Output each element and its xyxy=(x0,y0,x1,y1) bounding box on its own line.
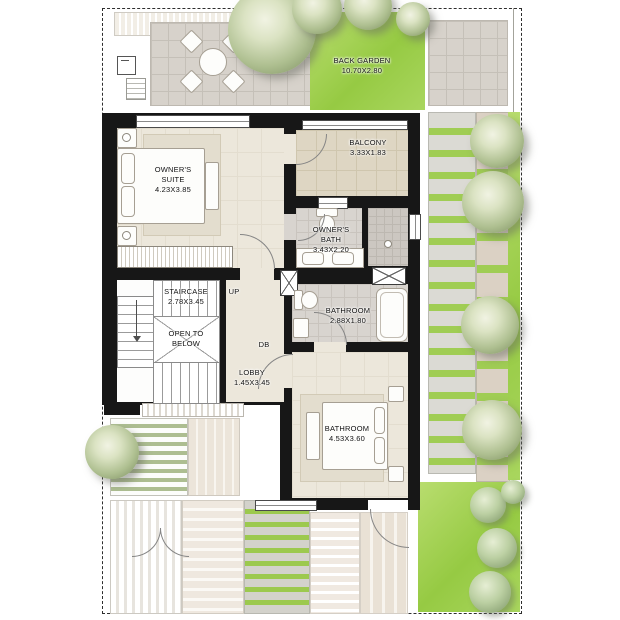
side-steps xyxy=(126,78,146,100)
nightstand xyxy=(388,386,404,402)
balcony-door-gap xyxy=(284,134,296,164)
entry-walk-strips xyxy=(310,512,360,614)
tree xyxy=(85,425,139,479)
shrub xyxy=(469,571,511,613)
suite-window xyxy=(136,115,250,128)
grasscrete-driveway xyxy=(244,500,310,614)
bed-bench xyxy=(205,162,219,210)
back-garden-label: BACK GARDEN 10.70X2.80 xyxy=(334,56,391,76)
suite-door-gap xyxy=(240,268,274,280)
lamp-icon xyxy=(122,231,131,240)
pillow xyxy=(374,407,385,434)
lobby-label: LOBBY 1.45X3.45 xyxy=(234,368,270,388)
carport-slats xyxy=(110,500,182,614)
utility-box-glyph xyxy=(121,60,129,61)
tree xyxy=(462,400,522,460)
shower-floor xyxy=(368,208,408,266)
bathroom-lower-label: BATHROOM 4.53X3.60 xyxy=(325,424,369,444)
balcony-railing xyxy=(302,120,408,130)
shrub xyxy=(501,480,525,504)
pillow xyxy=(374,437,385,464)
rear-paver-square xyxy=(428,20,508,106)
tree xyxy=(461,296,519,354)
owners-bath-label: OWNER'S BATH 3.43X2.20 xyxy=(306,225,356,255)
tree xyxy=(470,114,524,168)
stairs-lower-run xyxy=(153,362,220,404)
owners-bath-door-gap xyxy=(284,214,296,240)
nightstand xyxy=(388,466,404,482)
bathtub-inner xyxy=(380,292,404,338)
shaft-x xyxy=(372,267,406,285)
db-label: DB xyxy=(259,340,270,350)
front-window xyxy=(255,500,317,511)
owners-suite-label: OWNER'S SUITE 4.23X3.85 xyxy=(145,165,201,195)
pillow xyxy=(121,153,135,184)
tree xyxy=(462,171,524,233)
balcony-label: BALCONY 3.33X1.83 xyxy=(349,138,386,158)
stair-arrow-icon xyxy=(133,336,141,342)
floor-plan: BACK GARDEN 10.70X2.80 OWNER'S SUITE 4.2… xyxy=(0,0,620,620)
bed-bench xyxy=(306,412,320,460)
shrub xyxy=(477,528,517,568)
porch-step xyxy=(142,403,244,417)
open-to-below-label: OPEN TO BELOW xyxy=(162,329,210,349)
up-label: UP xyxy=(229,287,240,297)
shower-window xyxy=(409,214,421,240)
wardrobe xyxy=(117,246,233,268)
shower-drain-icon xyxy=(384,240,392,248)
lamp-icon xyxy=(122,133,131,142)
tree xyxy=(396,2,430,36)
front-deck xyxy=(188,418,240,496)
stair-direction-line xyxy=(136,300,137,338)
toilet-bowl xyxy=(301,291,318,309)
yard-wall-stub xyxy=(104,405,140,415)
pillow xyxy=(121,186,135,217)
sink xyxy=(293,318,309,338)
bathroom-upper-label: BATHROOM 2.88X1.80 xyxy=(326,306,370,326)
utility-box xyxy=(117,56,136,75)
patio-table xyxy=(199,48,227,76)
front-pavers xyxy=(182,500,244,614)
staircase-label: STAIRCASE 2.78X3.45 xyxy=(164,287,208,307)
